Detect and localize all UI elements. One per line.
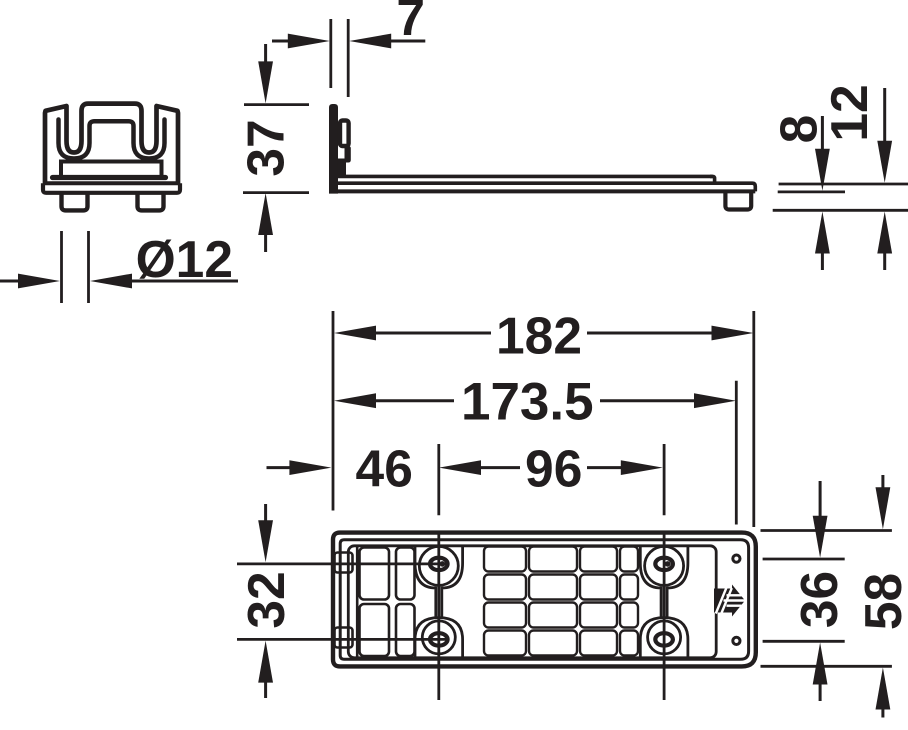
- svg-text:182: 182: [496, 307, 582, 365]
- svg-text:12: 12: [820, 84, 878, 141]
- svg-text:96: 96: [525, 440, 582, 498]
- svg-text:32: 32: [237, 571, 295, 628]
- svg-text:58: 58: [854, 573, 908, 630]
- svg-text:7: 7: [396, 0, 425, 46]
- svg-text:37: 37: [237, 119, 295, 176]
- svg-text:173.5: 173.5: [461, 373, 594, 432]
- svg-text:Ø12: Ø12: [136, 230, 233, 288]
- svg-text:8: 8: [770, 115, 828, 144]
- svg-text:46: 46: [356, 440, 413, 498]
- svg-text:36: 36: [790, 571, 848, 628]
